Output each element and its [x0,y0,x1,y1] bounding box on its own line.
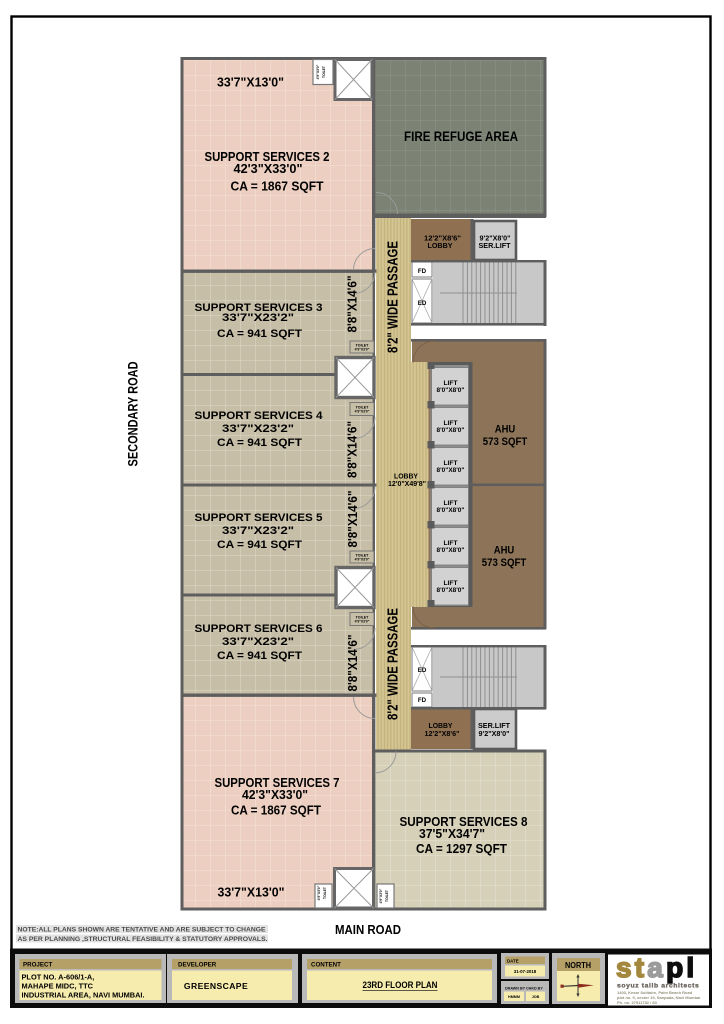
svg-text:8'0"X8'0": 8'0"X8'0" [437,428,465,434]
svg-text:4'9"X3'9": 4'9"X3'9" [355,348,370,352]
svg-text:TOILET: TOILET [385,889,389,902]
svg-text:TOILET: TOILET [322,65,326,78]
svg-text:MAHAPE MIDC, TTC: MAHAPE MIDC, TTC [22,982,94,991]
svg-text:NORTH: NORTH [565,960,591,970]
svg-text:LIFT: LIFT [444,381,458,387]
svg-text:HMMM: HMMM [508,995,520,999]
svg-text:GREENSCAPE: GREENSCAPE [184,981,248,991]
svg-text:CA = 941 SQFT: CA = 941 SQFT [217,328,302,340]
svg-text:AHU: AHU [494,544,515,556]
svg-text:4'9"X3'0": 4'9"X3'0" [316,64,320,79]
svg-text:33'7"X23'2": 33'7"X23'2" [222,636,294,648]
svg-text:CHKD BY: CHKD BY [526,987,543,991]
svg-text:NOTE:ALL PLANS SHOWN ARE TENTA: NOTE:ALL PLANS SHOWN ARE TENTATIVE AND A… [18,927,266,934]
svg-text:23RD FLOOR PLAN: 23RD FLOOR PLAN [363,980,438,991]
svg-text:42'3"X33'0": 42'3"X33'0" [234,161,303,176]
svg-text:4'9"X3'0": 4'9"X3'0" [379,888,383,903]
svg-text:AS PER PLANNING ,STRUCTURAL FE: AS PER PLANNING ,STRUCTURAL FEASIBILITY … [18,936,268,943]
svg-text:CA = 1867 SQFT: CA = 1867 SQFT [231,803,321,818]
svg-text:12'2"X8'6": 12'2"X8'6" [425,729,460,738]
svg-text:CA = 1867 SQFT: CA = 1867 SQFT [231,179,324,194]
svg-text:FD: FD [418,268,427,275]
svg-text:8'8"X14'6": 8'8"X14'6" [345,276,360,333]
svg-text:DATE: DATE [507,958,519,963]
svg-text:TOILET: TOILET [323,886,327,899]
svg-text:LIFT: LIFT [444,501,458,507]
svg-text:8'8"X14'6": 8'8"X14'6" [345,421,360,478]
svg-text:PROJECT: PROJECT [23,962,52,969]
svg-text:31-07-2018: 31-07-2018 [514,969,537,974]
svg-text:LIFT: LIFT [444,541,458,547]
svg-text:33'7"X13'0": 33'7"X13'0" [217,75,284,90]
svg-text:CONTENT: CONTENT [311,962,341,969]
svg-text:33'7"X23'2": 33'7"X23'2" [222,423,294,435]
svg-text:8'0"X8'0": 8'0"X8'0" [437,548,465,554]
svg-text:33'7"X13'0": 33'7"X13'0" [218,885,285,900]
svg-text:8'0"X8'0": 8'0"X8'0" [437,508,465,514]
svg-text:CA = 1297 SQFT: CA = 1297 SQFT [416,841,507,856]
svg-text:stapl: stapl [616,952,697,983]
svg-text:SER.LIFT: SER.LIFT [479,241,511,250]
svg-text:LIFT: LIFT [444,581,458,587]
svg-text:LOBBY: LOBBY [394,474,418,481]
svg-text:8'8"X14'6": 8'8"X14'6" [345,635,360,692]
svg-text:LIFT: LIFT [444,461,458,467]
svg-text:42'3"X33'0": 42'3"X33'0" [242,787,308,802]
svg-text:soyuz talib architects: soyuz talib architects [617,983,699,990]
svg-text:MAIN ROAD: MAIN ROAD [335,923,401,937]
svg-text:9'2"X8'0": 9'2"X8'0" [479,729,510,738]
svg-text:4'9"X3'9": 4'9"X3'9" [355,620,370,624]
svg-text:33'7"X23'2": 33'7"X23'2" [222,312,294,324]
svg-text:4'9"X3'9": 4'9"X3'9" [355,558,370,562]
svg-text:LOBBY: LOBBY [428,241,453,250]
svg-text:FD: FD [418,697,427,704]
svg-text:SECONDARY ROAD: SECONDARY ROAD [126,361,141,466]
svg-text:8'0"X8'0": 8'0"X8'0" [437,588,465,594]
svg-text:37'5"X34'7": 37'5"X34'7" [419,826,485,841]
svg-text:PLOT NO. A-606/1-A,: PLOT NO. A-606/1-A, [22,973,95,982]
svg-text:4'9"X3'0": 4'9"X3'0" [317,885,321,900]
svg-text:DEVELOPER: DEVELOPER [178,962,217,969]
svg-text:SUPPORT SERVICES 4: SUPPORT SERVICES 4 [195,410,324,422]
svg-text:4'9"X3'9": 4'9"X3'9" [355,410,370,414]
svg-text:8'2" WIDE PASSAGE: 8'2" WIDE PASSAGE [385,241,402,353]
svg-text:CA = 941 SQFT: CA = 941 SQFT [217,650,302,662]
svg-text:LIFT: LIFT [444,421,458,427]
svg-text:SUPPORT SERVICES 5: SUPPORT SERVICES 5 [195,512,323,524]
svg-text:8'0"X8'0": 8'0"X8'0" [437,388,465,394]
svg-text:SUPPORT SERVICES 6: SUPPORT SERVICES 6 [195,623,323,635]
svg-text:CA = 941 SQFT: CA = 941 SQFT [217,539,302,551]
svg-text:ED: ED [418,667,427,674]
svg-text:8'2" WIDE PASSAGE: 8'2" WIDE PASSAGE [385,608,402,720]
svg-text:INDUSTRIAL AREA, NAVI MUMBAI.: INDUSTRIAL AREA, NAVI MUMBAI. [22,991,145,1000]
svg-text:ED: ED [418,300,427,307]
svg-text:8'0"X8'0": 8'0"X8'0" [437,468,465,474]
svg-text:8'8"X14'6": 8'8"X14'6" [345,491,360,548]
svg-text:DRAWN BY: DRAWN BY [505,987,526,991]
svg-text:AHU: AHU [495,423,516,435]
svg-text:CA = 941 SQFT: CA = 941 SQFT [217,437,302,449]
svg-text:12'0"X49'8": 12'0"X49'8" [388,481,426,488]
svg-text:JOB: JOB [532,995,540,999]
svg-text:573 SQFT: 573 SQFT [482,557,527,569]
svg-text:573 SQFT: 573 SQFT [483,436,528,448]
svg-text:Ph. no. 27911782 / 83: Ph. no. 27911782 / 83 [617,1000,658,1005]
svg-text:33'7"X23'2": 33'7"X23'2" [222,525,294,537]
svg-text:FIRE REFUGE AREA: FIRE REFUGE AREA [404,129,518,144]
